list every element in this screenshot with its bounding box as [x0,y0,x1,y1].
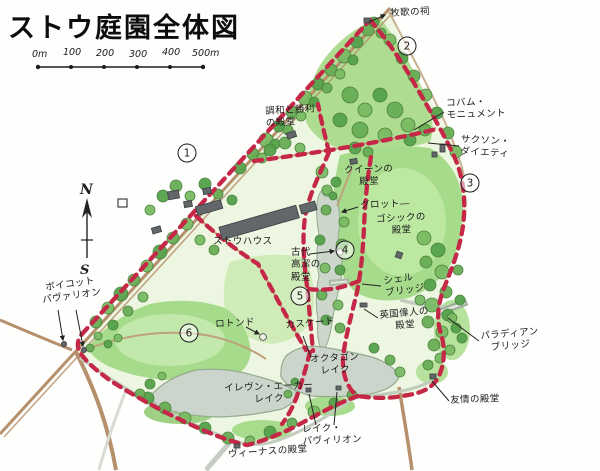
label-ancient-virtue-temple: 古代 高潔の 殿堂 [291,247,321,284]
label-octagon-lake: オクタゴン レイク [310,351,360,378]
station-marker-3: 3 [461,174,480,193]
scale-label-400: 400 [162,47,180,58]
outbuilding-2 [184,200,193,207]
tree-icon [264,144,276,156]
compass-north-arrow: N S [66,178,112,278]
tree-icon [86,344,94,352]
tree-icon [315,235,325,245]
label-palladian-bridge: パラディアン ブリッジ [480,326,540,356]
label-cobham-monument: コバム・ モニュメント [446,96,506,123]
tree-icon [335,69,345,79]
compass-north-label: N [79,182,94,198]
boycott-pavilion-east-mark [81,347,86,352]
leader-friendship [432,381,449,401]
tree-icon [321,205,331,215]
british-worthies-mark [360,303,367,307]
scale-label-200: 200 [96,48,114,59]
label-gothic-temple: ゴシックの 殿堂 [376,211,427,238]
station-marker-4: 4 [336,241,355,260]
tree-icon [333,300,343,310]
tree-icon [435,265,449,279]
boycott-pavilion-west-mark [61,341,66,346]
tree-icon [420,256,432,268]
scale-bar: 0m 100 200 300 400 500m [28,44,228,76]
tree-icon [339,217,349,227]
station-marker-1: 1 [178,144,197,163]
station-marker-5: 5 [291,287,310,306]
garden-map-page: ストウ庭園全体図 0m 100 200 300 400 500m N S 牧歌の… [0,0,600,471]
lake-pavilion-east-mark [336,386,341,390]
courtyard-square [118,199,127,207]
tree-icon [401,118,415,132]
tree-icon [369,343,379,353]
tree-icon [395,367,405,377]
label-stowe-house: ストウハウス [213,236,272,248]
tree-icon [352,122,368,138]
tree-icon [320,263,330,273]
outbuilding-1 [167,190,179,200]
tree-icon [145,379,155,389]
tree-icon [445,345,455,355]
tree-icon [114,334,122,342]
tree-icon [322,83,332,93]
page-title: ストウ庭園全体図 [8,6,240,45]
entry-drive [206,441,231,470]
rotondo-mark [260,334,267,341]
tree-icon [453,265,463,275]
tree-icon [423,360,433,370]
tree-icon [195,235,205,245]
cobham-monument-mark [440,144,445,152]
outbuilding-3 [203,187,212,194]
west-approach-road [0,320,72,350]
tree-icon [333,113,347,127]
tree-icon [145,205,155,215]
scale-label-300: 300 [129,49,147,60]
leader-boycott-west [58,310,63,340]
friendship-temple-mark [430,374,436,379]
tree-icon [295,143,305,153]
southeast-road [399,387,412,470]
tree-icon [123,306,133,316]
tree-icon [94,332,102,340]
tree-icon [335,265,345,275]
saxon-deities-mark [432,152,437,157]
tree-icon [385,355,395,365]
tree-icon [158,372,166,380]
tree-icon [428,339,440,351]
tree-icon [431,243,445,257]
tree-icon [387,102,403,118]
tree-icon [342,87,358,103]
tree-icon [329,192,337,200]
scale-label-0: 0m [32,49,47,60]
outbuilding-4 [151,226,161,234]
southwest-lawn-highlight [115,314,225,366]
tree-icon [335,323,345,333]
label-pastoral-shrine: 牧歌の祠 [390,6,430,20]
label-rotondo: ロトンド [215,317,255,331]
label-concord-victory-temple: 調和と勝利 の殿堂 [265,103,316,130]
tree-icon [424,279,436,291]
label-saxon-deities: サクソン・ ダイエティ [460,134,511,161]
tree-icon [138,292,148,302]
scale-label-100: 100 [63,47,81,58]
tree-icon [108,320,118,330]
tree-icon [415,295,425,305]
station-marker-2: 2 [398,37,417,56]
tree-icon [331,177,341,187]
station-marker-6: 6 [180,324,199,343]
tree-icon [104,340,112,348]
tree-icon [373,88,387,102]
label-friendship-temple: 友情の殿堂 [450,393,500,407]
label-british-worthies-temple: 英国偉人の 殿堂 [379,306,430,335]
pastoral-shrine-mark [364,18,370,23]
tree-icon [185,191,195,201]
label-eleven-acre-lake: イレヴン・エーカー レイク [224,380,314,408]
tree-icon [457,333,467,343]
label-queens-temple: クイーンの 殿堂 [344,163,394,189]
tree-icon [227,195,237,205]
scale-label-500: 500m [192,48,219,59]
tree-icon [358,103,372,117]
label-lake-pavilion: レイク・ パヴィリオン [302,422,362,449]
label-grotto: グロット― [360,198,410,212]
tree-icon [348,55,358,65]
tree-icon [455,295,465,305]
